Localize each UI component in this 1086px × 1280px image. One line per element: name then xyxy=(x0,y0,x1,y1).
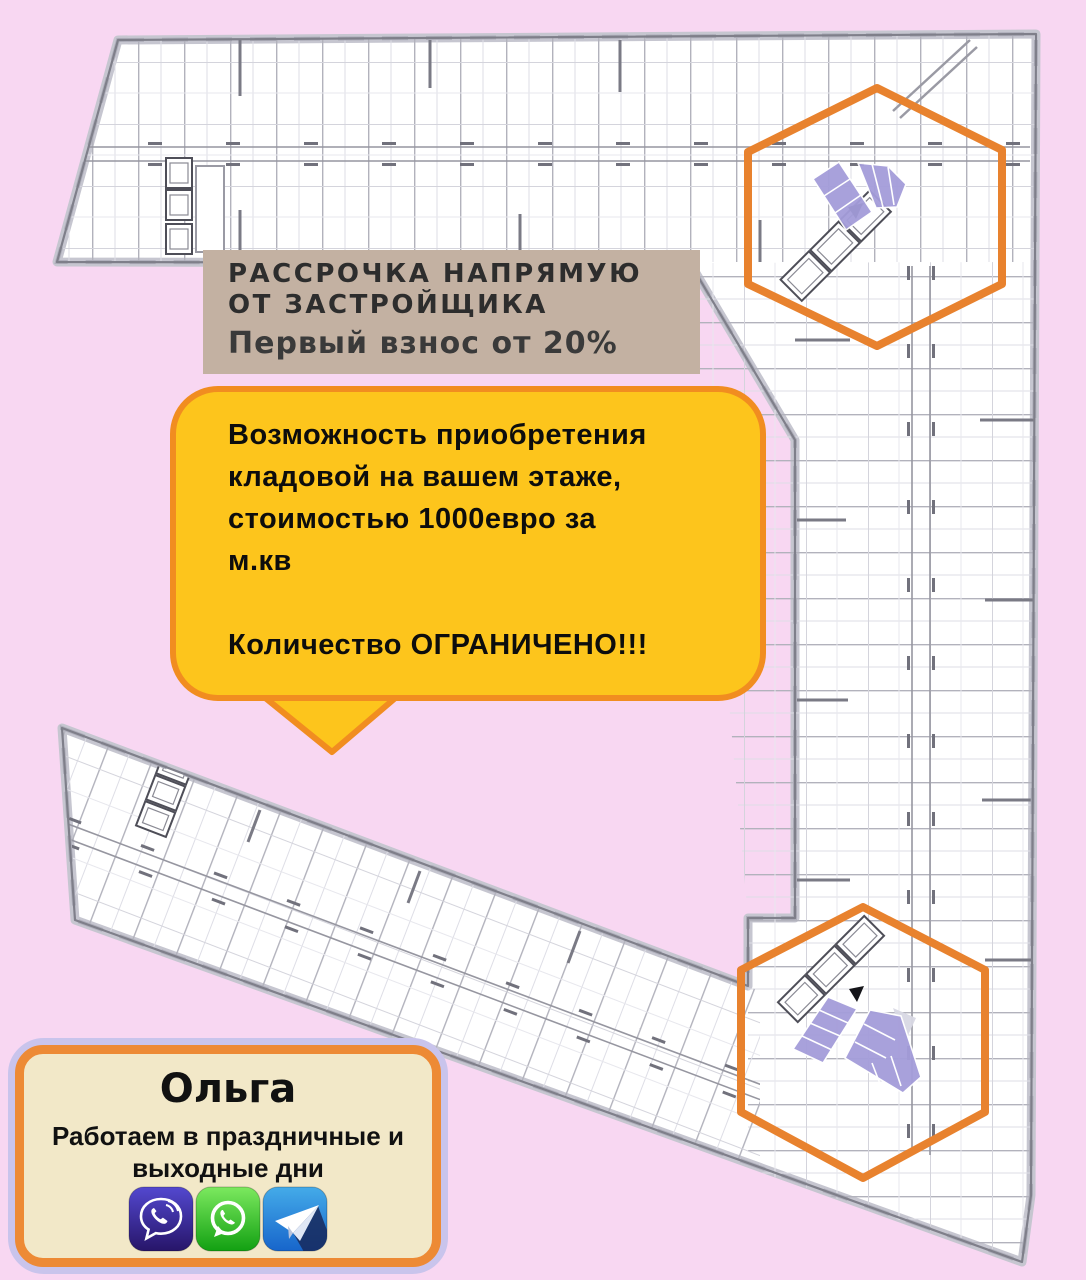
note-line-1: Работаем в праздничные и xyxy=(52,1121,404,1151)
storage-offer-bubble: Возможность приобретения кладовой на ваш… xyxy=(170,386,766,701)
note-line-2: выходные дни xyxy=(132,1153,324,1183)
banner-line-1: РАССРОЧКА НАПРЯМУЮ xyxy=(228,259,700,290)
telegram-icon[interactable] xyxy=(262,1186,328,1252)
bubble-line-3: стоимостью 1000евро за xyxy=(228,498,746,540)
poster: РАССРОЧКА НАПРЯМУЮ ОТ ЗАСТРОЙЩИКА Первый… xyxy=(0,0,1086,1280)
working-hours-note: Работаем в праздничные и выходные дни xyxy=(52,1120,404,1184)
bubble-emphasis-line: Количество ОГРАНИЧЕНО!!! xyxy=(228,624,746,666)
agent-name: Ольга xyxy=(160,1066,296,1112)
bubble-line-1: Возможность приобретения xyxy=(228,414,746,456)
bubble-line-4: м.кв xyxy=(228,540,746,582)
elevator-core-top xyxy=(166,158,224,254)
banner-line-3: Первый взнос от 20% xyxy=(228,327,700,361)
whatsapp-icon[interactable] xyxy=(195,1186,261,1252)
messenger-icons-row xyxy=(128,1186,328,1252)
bubble-blank-line xyxy=(228,582,746,624)
banner-line-2: ОТ ЗАСТРОЙЩИКА xyxy=(228,290,700,321)
contact-card-inner: Ольга Работаем в праздничные и выходные … xyxy=(15,1045,441,1267)
installment-banner: РАССРОЧКА НАПРЯМУЮ ОТ ЗАСТРОЙЩИКА Первый… xyxy=(203,250,700,374)
viber-icon[interactable] xyxy=(128,1186,194,1252)
bubble-line-2: кладовой на вашем этаже, xyxy=(228,456,746,498)
contact-card: Ольга Работаем в праздничные и выходные … xyxy=(8,1038,448,1274)
